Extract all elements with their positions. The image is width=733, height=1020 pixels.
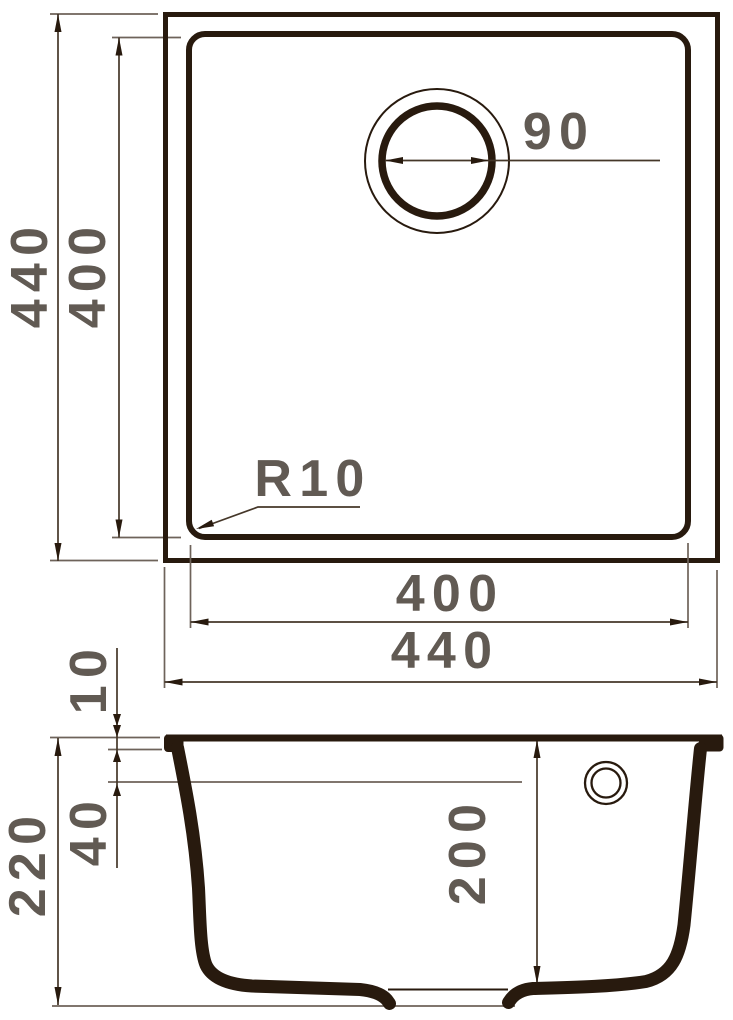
arrowhead: [113, 725, 121, 737]
dim-label-top-inner-width: 400: [396, 568, 505, 620]
sink-technical-drawing: 440 400 90 R10 400 440 10 40 220 200: [0, 0, 733, 1020]
arrowhead: [113, 750, 121, 762]
leader-line-corner-radius: [199, 507, 360, 529]
arrowhead: [534, 740, 541, 758]
dim-label-rim-thickness: 10: [63, 642, 115, 714]
dim-label-top-inner-height: 400: [62, 220, 114, 329]
top-view: [50, 14, 718, 688]
dim-label-top-outer-width: 440: [391, 625, 500, 677]
arrowhead: [471, 157, 489, 164]
dim-label-corner-radius: R10: [254, 453, 371, 505]
arrowhead: [116, 38, 123, 56]
arrowhead: [385, 157, 403, 164]
dim-label-bowl-depth: 200: [442, 797, 494, 906]
sink-outer-edge: [166, 15, 718, 561]
arrowhead: [670, 619, 688, 626]
arrowhead: [699, 679, 717, 686]
bowl-wall-left: [178, 748, 390, 1004]
arrowhead: [55, 738, 62, 756]
dim-label-step-depth: 40: [63, 794, 115, 866]
dim-label-top-outer-height: 440: [4, 220, 56, 329]
section-view: [50, 648, 724, 1006]
drawing-linework: [0, 0, 733, 1020]
section-drain-inner-circle: [592, 769, 621, 798]
arrowhead: [55, 14, 62, 32]
dim-label-overall-height: 220: [2, 809, 54, 918]
arrowhead: [534, 966, 541, 984]
arrowhead: [165, 679, 183, 686]
dim-label-drain-diameter: 90: [523, 106, 595, 158]
arrowhead: [191, 619, 209, 626]
arrowhead: [116, 520, 123, 538]
arrowhead: [113, 714, 121, 726]
arrowhead: [55, 543, 62, 561]
arrowhead: [196, 520, 214, 529]
arrowhead: [55, 987, 62, 1005]
